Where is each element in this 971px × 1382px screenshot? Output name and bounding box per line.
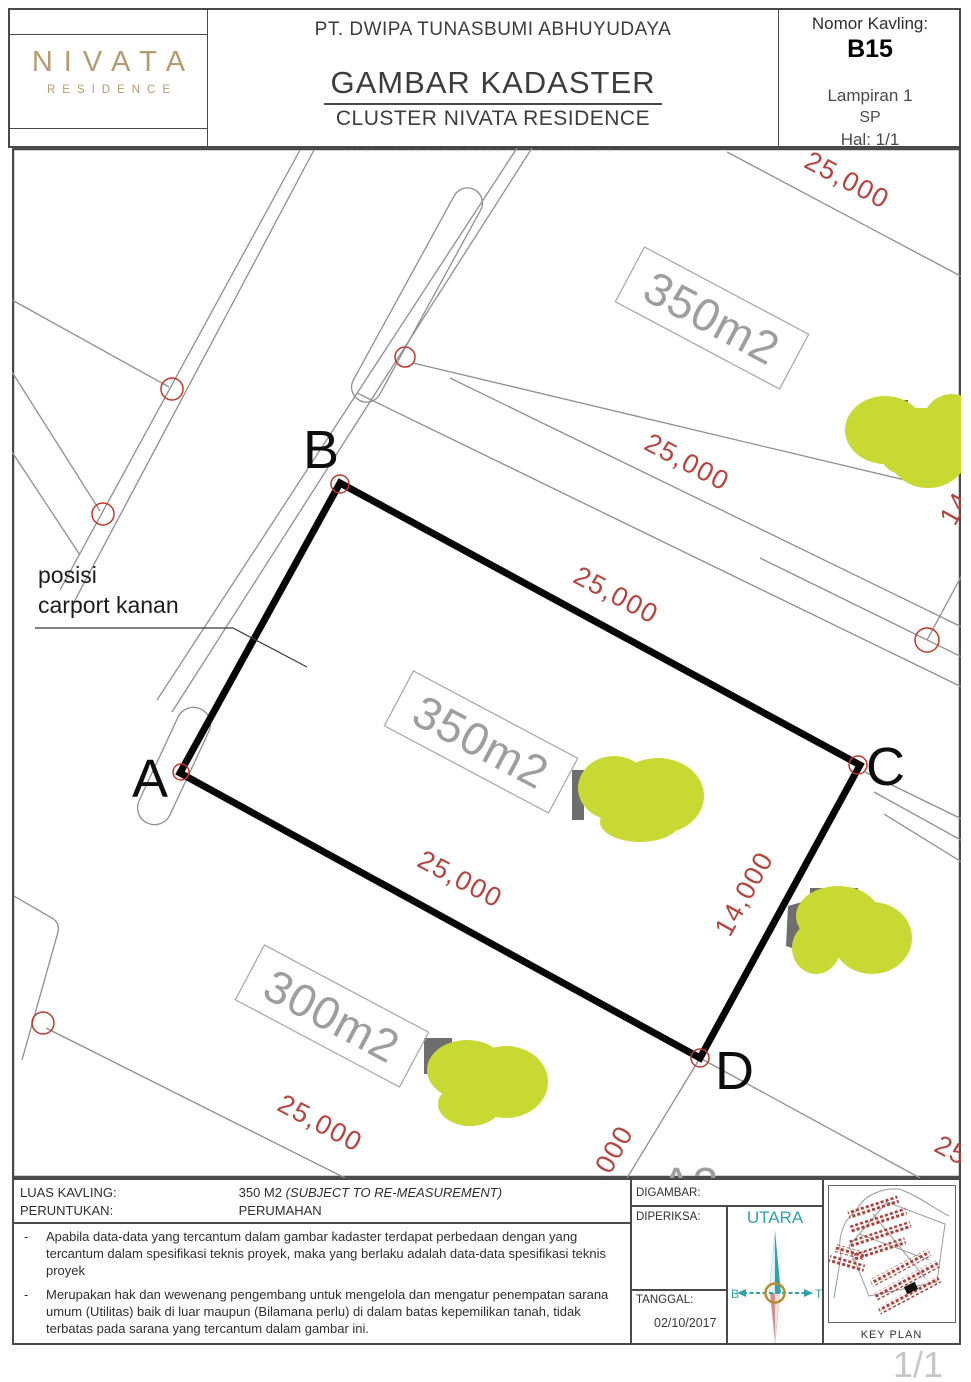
compass-east-arrow: [804, 1289, 813, 1297]
document-title: GAMBAR KADASTER: [324, 65, 661, 105]
company-name: PT. DWIPA TUNASBUMI ABHUYUDAYA: [208, 19, 778, 41]
tanggal-label: TANGGAL:: [636, 1294, 693, 1306]
compass-rose: UTARA B T: [729, 1205, 822, 1345]
drawing-frame: [13, 149, 960, 1177]
kavling-number: B15: [779, 35, 961, 64]
key-plan-graphic: [829, 1186, 955, 1322]
note-bullet: -: [20, 1286, 46, 1337]
keyplan-cell: KEY PLAN: [822, 1180, 961, 1343]
corner-label-d: D: [715, 1041, 754, 1101]
document-subtitle: CLUSTER NIVATA RESIDENCE: [208, 107, 778, 131]
title-cell: PT. DWIPA TUNASBUMI ABHUYUDAYA GAMBAR KA…: [208, 10, 778, 146]
parcel-label-a2: A2: [661, 1158, 719, 1178]
corner-label-c: C: [866, 737, 905, 797]
corner-label-b: B: [303, 420, 339, 480]
compass-west-label: B: [731, 1287, 739, 1301]
divider: [10, 34, 207, 35]
compass: UTARA B T: [729, 1205, 822, 1345]
note-text: Merupakan hak dan wewenang pengembang un…: [46, 1286, 625, 1337]
key-plan-blocks: [829, 1194, 946, 1314]
luas-kavling-row: LUAS KAVLING: 350 M2 (SUBJECT TO RE-MEAS…: [20, 1185, 502, 1200]
notes-block: - Apabila data-data yang tercantum dalam…: [20, 1228, 625, 1344]
divider: [14, 1222, 630, 1224]
annotation-line2: carport kanan: [38, 592, 179, 618]
kavling-cell: Nomor Kavling: B15 Lampiran 1 SP Hal: 1/…: [778, 10, 961, 146]
luas-kavling-value: 350 M2: [239, 1185, 282, 1200]
divider: [10, 128, 207, 129]
page-number: 1/1: [893, 1344, 943, 1382]
key-plan-map: [828, 1185, 956, 1323]
luas-kavling-note: (SUBJECT TO RE-MEASUREMENT): [286, 1185, 502, 1200]
peruntukan-row: PERUNTUKAN: PERUMAHAN: [20, 1203, 322, 1218]
attachment-label: Lampiran 1: [779, 86, 961, 106]
cadastral-document-page: NIVATA RESIDENCE PT. DWIPA TUNASBUMI ABH…: [0, 0, 971, 1382]
key-plan-label: KEY PLAN: [822, 1329, 961, 1341]
divider: [630, 1289, 727, 1291]
digambar-label: DIGAMBAR:: [636, 1187, 701, 1199]
corner-label-a: A: [132, 749, 168, 809]
luas-kavling-label: LUAS KAVLING:: [20, 1185, 235, 1200]
tanggal-value: 02/10/2017: [654, 1316, 717, 1330]
compass-east-label: T: [815, 1287, 822, 1301]
cadastral-drawing: 350m2 350m2 300m2 A2 25,000 25,000 25,00…: [12, 148, 961, 1178]
title-block-footer: LUAS KAVLING: 350 M2 (SUBJECT TO RE-MEAS…: [12, 1178, 961, 1345]
title-block-header: NIVATA RESIDENCE PT. DWIPA TUNASBUMI ABH…: [8, 8, 961, 148]
note-item: - Merupakan hak dan wewenang pengembang …: [20, 1286, 625, 1337]
divider: [726, 1205, 728, 1343]
brand-logo-sub: RESIDENCE: [10, 84, 207, 96]
logo-cell: NIVATA RESIDENCE: [10, 10, 208, 146]
sp-label: SP: [779, 109, 961, 127]
note-bullet: -: [20, 1228, 46, 1279]
peruntukan-value: PERUMAHAN: [239, 1203, 322, 1218]
page-label: Hal: 1/1: [779, 130, 961, 150]
annotation-line1: posisi: [38, 562, 97, 588]
note-item: - Apabila data-data yang tercantum dalam…: [20, 1228, 625, 1279]
diperiksa-label: DIPERIKSA:: [636, 1211, 701, 1223]
brand-logo: NIVATA: [10, 46, 207, 79]
kavling-label: Nomor Kavling:: [779, 14, 961, 34]
note-text: Apabila data-data yang tercantum dalam g…: [46, 1228, 625, 1279]
compass-north-label: UTARA: [747, 1208, 804, 1227]
peruntukan-label: PERUNTUKAN:: [20, 1203, 235, 1218]
